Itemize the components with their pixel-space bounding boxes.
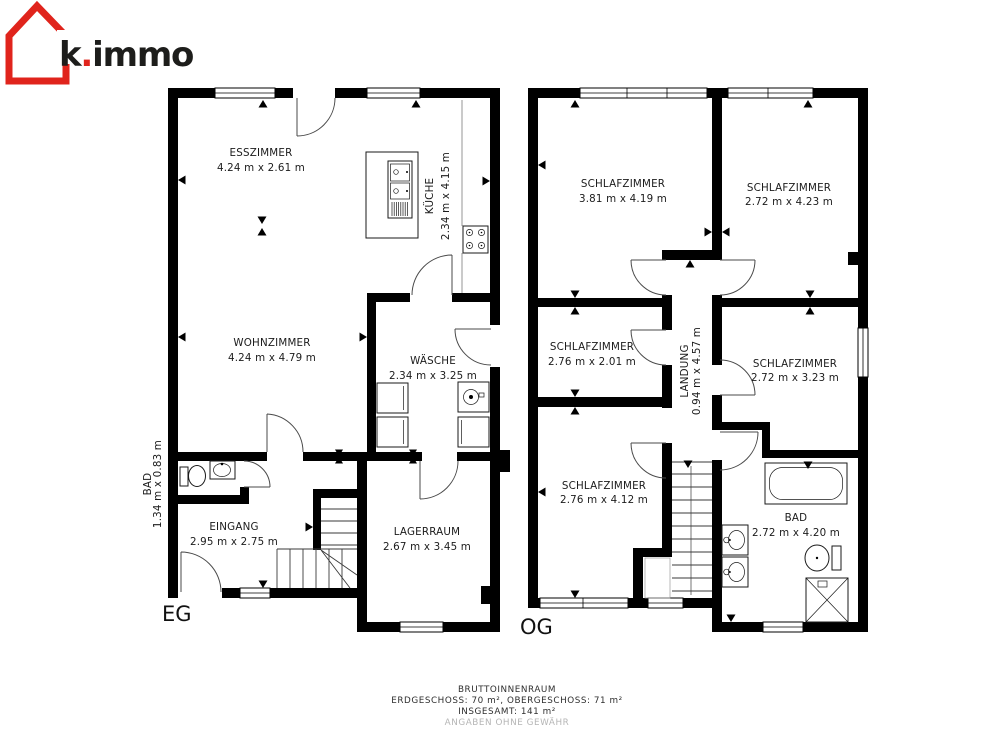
window-icon xyxy=(400,622,443,632)
k-immo-logo: k.immo xyxy=(9,6,193,81)
footer-bruttoinnenraum: BRUTTOINNENRAUM xyxy=(458,685,556,695)
footer-total-area: INSGESAMT: 141 m² xyxy=(458,707,556,717)
eg-room-labels: ESSZIMMER 4.24 m x 2.61 m KÜCHE 2.34 m x… xyxy=(142,147,477,553)
room-dims-schlafzimmer-4: 2.72 m x 3.23 m xyxy=(751,372,839,384)
og-stairs xyxy=(645,462,712,598)
footer-floor-areas: ERDGESCHOSS: 70 m², OBERGESCHOSS: 71 m² xyxy=(391,696,622,706)
og-floor-label: OG xyxy=(520,615,553,639)
footer-disclaimer: ANGABEN OHNE GEWÄHR xyxy=(445,717,570,728)
bathtub-icon xyxy=(765,463,847,504)
sink-icon xyxy=(210,461,235,479)
room-label-lagerraum: LAGERRAUM xyxy=(394,526,460,538)
window-icon xyxy=(728,88,813,98)
room-dims-bad-og: 2.72 m x 4.20 m xyxy=(752,527,840,539)
room-dims-esszimmer: 4.24 m x 2.61 m xyxy=(217,162,305,174)
room-label-schlafzimmer-4: SCHLAFZIMMER xyxy=(753,358,837,370)
footer: BRUTTOINNENRAUM ERDGESCHOSS: 70 m², OBER… xyxy=(391,685,622,728)
room-label-eingang: EINGANG xyxy=(209,521,258,533)
kitchen-island-icon xyxy=(366,152,418,238)
room-dims-schlafzimmer-2: 2.72 m x 4.23 m xyxy=(745,196,833,208)
room-label-bad-og: BAD xyxy=(785,512,808,524)
double-sink-icons xyxy=(722,525,748,587)
window-icon xyxy=(648,598,683,608)
room-label-landung: LANDUNG xyxy=(679,344,691,397)
room-label-wohnzimmer: WOHNZIMMER xyxy=(233,337,310,349)
room-label-kueche: KÜCHE xyxy=(423,178,436,214)
window-icon xyxy=(215,88,275,98)
room-label-esszimmer: ESSZIMMER xyxy=(230,147,293,159)
window-icon xyxy=(240,588,270,598)
room-label-schlafzimmer-2: SCHLAFZIMMER xyxy=(747,182,831,194)
room-label-schlafzimmer-3: SCHLAFZIMMER xyxy=(550,341,634,353)
shower-icon xyxy=(806,578,848,622)
room-dims-bad-eg: 1.34 m x 0.83 m xyxy=(152,440,164,528)
room-dims-landung: 0.94 m x 4.57 m xyxy=(691,327,703,415)
stove-icon xyxy=(463,226,488,253)
window-icon xyxy=(580,88,707,98)
eg-floor-plan: ESSZIMMER 4.24 m x 2.61 m KÜCHE 2.34 m x… xyxy=(142,88,510,632)
window-icon xyxy=(858,328,868,377)
room-dims-waesche: 2.34 m x 3.25 m xyxy=(389,370,477,382)
room-dims-schlafzimmer-3: 2.76 m x 2.01 m xyxy=(548,356,636,368)
toilet-icon xyxy=(180,466,206,487)
room-dims-schlafzimmer-5: 2.76 m x 4.12 m xyxy=(560,494,648,506)
window-icon xyxy=(540,598,628,608)
og-floor-plan: SCHLAFZIMMER 3.81 m x 4.19 m SCHLAFZIMME… xyxy=(520,88,868,639)
logo-wordmark: k.immo xyxy=(59,35,193,75)
room-dims-eingang: 2.95 m x 2.75 m xyxy=(190,536,278,548)
eg-floor-label: EG xyxy=(162,602,192,626)
room-dims-schlafzimmer-1: 3.81 m x 4.19 m xyxy=(579,193,667,205)
room-dims-kueche: 2.34 m x 4.15 m xyxy=(440,152,452,240)
room-dims-lagerraum: 2.67 m x 3.45 m xyxy=(383,541,471,553)
window-icon xyxy=(367,88,420,98)
window-icon xyxy=(763,622,803,632)
room-label-waesche: WÄSCHE xyxy=(410,354,456,367)
room-label-schlafzimmer-5: SCHLAFZIMMER xyxy=(562,480,646,492)
room-dims-wohnzimmer: 4.24 m x 4.79 m xyxy=(228,352,316,364)
floor-plan-canvas: k.immo xyxy=(0,0,1000,750)
laundry-appliance-icons xyxy=(377,382,489,447)
room-label-schlafzimmer-1: SCHLAFZIMMER xyxy=(581,178,665,190)
toilet-icon xyxy=(805,545,841,571)
